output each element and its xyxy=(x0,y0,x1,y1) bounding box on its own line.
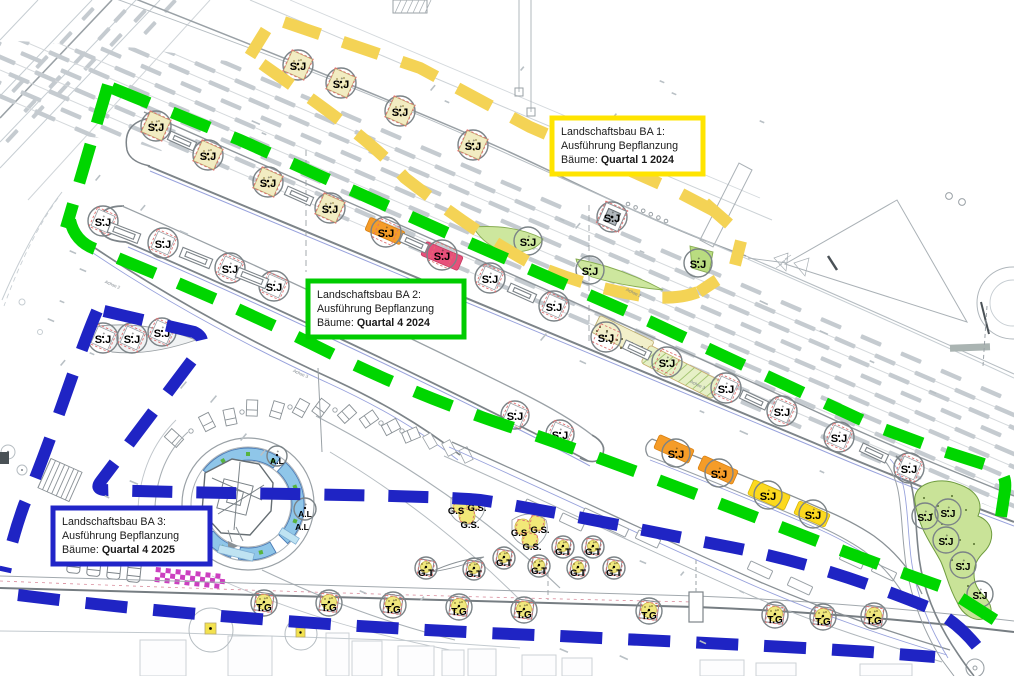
svg-text:G.S.: G.S. xyxy=(530,525,549,536)
svg-text:S.J: S.J xyxy=(831,433,848,445)
svg-text:S.J: S.J xyxy=(124,334,141,346)
svg-text:A.L: A.L xyxy=(298,509,312,519)
svg-text:G.S: G.S xyxy=(511,528,527,539)
svg-text:+: + xyxy=(329,596,332,601)
svg-text:S.J: S.J xyxy=(718,384,735,396)
svg-text:S.J: S.J xyxy=(659,358,676,370)
svg-text:+: + xyxy=(823,610,826,615)
svg-text:+: + xyxy=(393,598,396,603)
svg-text:G.S.: G.S. xyxy=(522,542,541,553)
svg-text:G.T: G.T xyxy=(531,566,547,577)
svg-text:G.T: G.T xyxy=(496,558,512,569)
svg-text:+: + xyxy=(305,502,308,507)
svg-text:+: + xyxy=(264,596,267,601)
svg-text:S.J: S.J xyxy=(266,282,283,294)
svg-text:+: + xyxy=(578,561,581,566)
svg-text:+: + xyxy=(593,540,596,545)
svg-text:+: + xyxy=(474,562,477,567)
svg-text:Ausführung Bepflanzung: Ausführung Bepflanzung xyxy=(561,140,678,152)
svg-text:S.J: S.J xyxy=(520,237,537,249)
svg-text:S.J: S.J xyxy=(290,61,307,73)
svg-text:T.G: T.G xyxy=(866,616,882,627)
svg-text:S.J: S.J xyxy=(955,562,970,573)
svg-text:Bäume: Quartal 4 2025: Bäume: Quartal 4 2025 xyxy=(62,544,175,556)
svg-text:S.J: S.J xyxy=(434,251,451,263)
svg-text:T.G: T.G xyxy=(516,610,532,621)
svg-text:S.J: S.J xyxy=(711,469,728,481)
svg-text:G.T: G.T xyxy=(466,569,482,580)
svg-text:+: + xyxy=(539,559,542,564)
svg-text:S.J: S.J xyxy=(604,213,621,225)
svg-text:G.T: G.T xyxy=(555,547,571,558)
svg-text:S.J: S.J xyxy=(805,510,822,522)
svg-text:G.S: G.S xyxy=(448,506,464,517)
svg-text:S.J: S.J xyxy=(901,464,918,476)
svg-text:S.J: S.J xyxy=(392,107,409,119)
svg-text:S.J: S.J xyxy=(148,122,165,134)
svg-text:T.G: T.G xyxy=(321,603,337,614)
svg-text:S.J: S.J xyxy=(465,141,482,153)
svg-text:+: + xyxy=(649,604,652,609)
svg-text:S.J: S.J xyxy=(378,228,395,240)
svg-text:+: + xyxy=(524,603,527,608)
svg-text:+: + xyxy=(614,561,617,566)
svg-text:G.T: G.T xyxy=(570,568,586,579)
svg-text:T.G: T.G xyxy=(641,611,657,622)
svg-text:+: + xyxy=(874,609,877,614)
svg-text:G.T: G.T xyxy=(585,547,601,558)
svg-text:Landschaftsbau BA 1:: Landschaftsbau BA 1: xyxy=(561,126,665,138)
svg-text:S.J: S.J xyxy=(774,407,791,419)
svg-text:S.J: S.J xyxy=(155,239,172,251)
svg-text:Ausführung Bepflanzung: Ausführung Bepflanzung xyxy=(62,530,179,542)
svg-text:S.J: S.J xyxy=(668,449,685,461)
svg-text:+: + xyxy=(459,600,462,605)
svg-text:T.G: T.G xyxy=(256,603,272,614)
svg-text:S.J: S.J xyxy=(598,333,615,345)
svg-text:Landschaftsbau BA 3:: Landschaftsbau BA 3: xyxy=(62,516,166,528)
svg-text:S.J: S.J xyxy=(333,79,350,91)
svg-text:+: + xyxy=(504,551,507,556)
svg-text:S.J: S.J xyxy=(760,491,777,503)
svg-text:T.G: T.G xyxy=(451,607,467,618)
svg-text:Bäume: Quartal 1 2024: Bäume: Quartal 1 2024 xyxy=(561,154,674,166)
svg-text:A.L: A.L xyxy=(295,522,309,532)
svg-text:A.L: A.L xyxy=(270,456,284,466)
svg-text:G.T: G.T xyxy=(606,568,622,579)
svg-text:S.J: S.J xyxy=(938,537,953,548)
svg-text:+: + xyxy=(277,449,280,454)
svg-text:T.G: T.G xyxy=(385,605,401,616)
svg-text:+: + xyxy=(563,540,566,545)
svg-text:Landschaftsbau BA 2:: Landschaftsbau BA 2: xyxy=(317,289,421,301)
svg-text:S.J: S.J xyxy=(690,259,707,271)
svg-text:S.J: S.J xyxy=(546,302,563,314)
svg-text:S.J: S.J xyxy=(482,274,499,286)
svg-text:+: + xyxy=(775,608,778,613)
svg-text:T.G: T.G xyxy=(815,617,831,628)
svg-text:S.J: S.J xyxy=(322,204,339,216)
svg-text:S.J: S.J xyxy=(940,509,955,520)
svg-text:G.T: G.T xyxy=(418,568,434,579)
svg-text:S.J: S.J xyxy=(260,178,277,190)
svg-text:Bäume: Quartal 4 2024: Bäume: Quartal 4 2024 xyxy=(317,317,430,329)
svg-text:Ausführung Bepflanzung: Ausführung Bepflanzung xyxy=(317,303,434,315)
svg-text:G.S.: G.S. xyxy=(460,520,479,531)
svg-text:S.J: S.J xyxy=(582,266,599,278)
svg-text:+: + xyxy=(426,561,429,566)
svg-text:S.J: S.J xyxy=(200,151,217,163)
svg-text:T.G: T.G xyxy=(767,615,783,626)
svg-text:S.J: S.J xyxy=(95,334,112,346)
svg-text:S.J: S.J xyxy=(917,513,932,524)
